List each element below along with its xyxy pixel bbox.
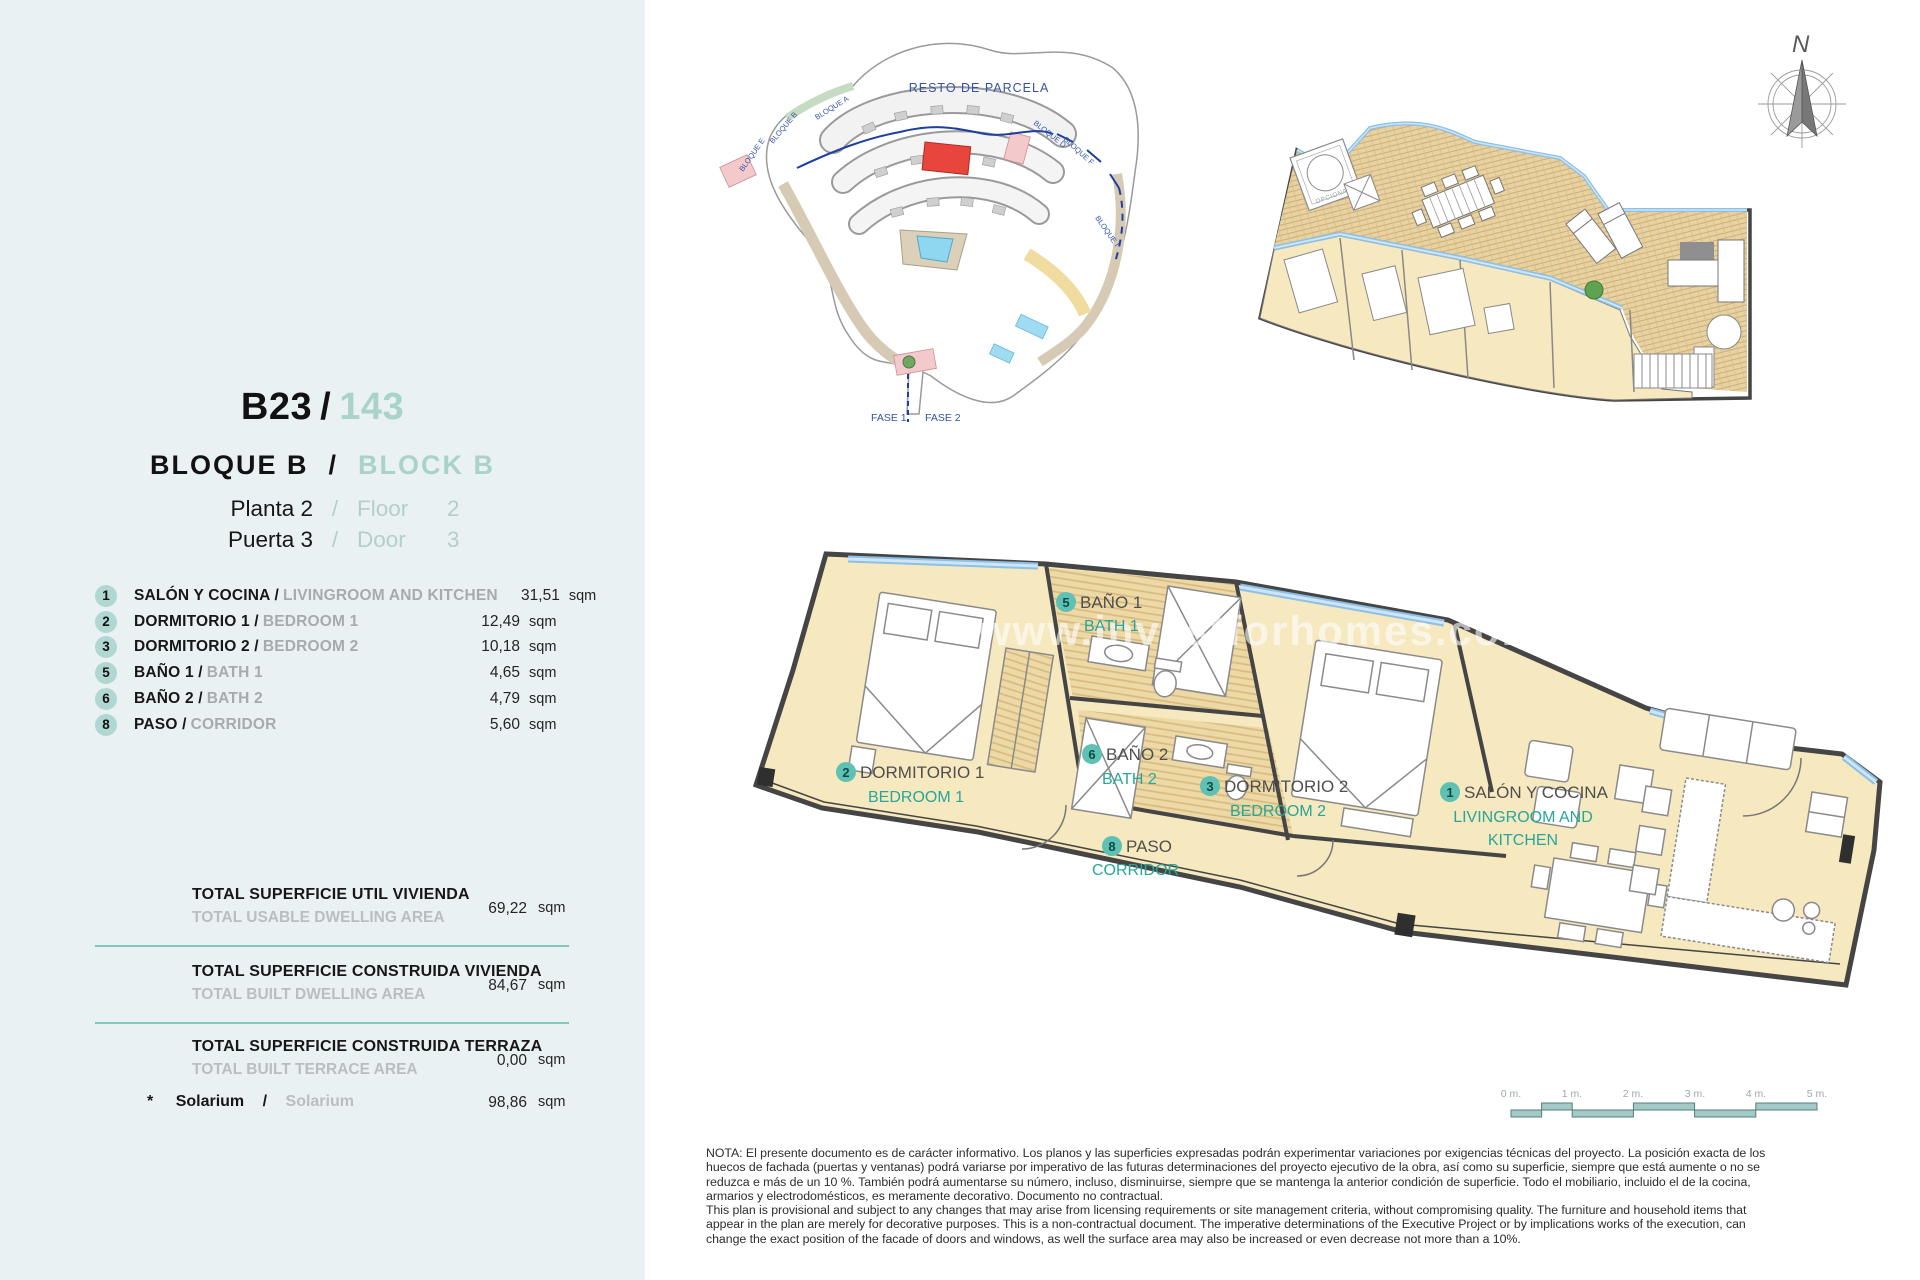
room-area-unit: sqm [529, 665, 569, 681]
room-row-bath1: 5 BAÑO 1 /BATH 1 4,65 sqm [95, 660, 569, 686]
totals-section: TOTAL SUPERFICIE UTIL VIVIENDA TOTAL USA… [95, 878, 569, 1111]
room-row-corridor: 8 PASO /CORRIDOR 5,60 sqm [95, 712, 569, 738]
divider [95, 945, 569, 947]
armchair [1524, 740, 1573, 782]
plan-sheet: B23/143 BLOQUE B/BLOCK B Planta 2 / Floo… [0, 0, 1920, 1280]
scale-0m: 0 m. [1501, 1088, 1521, 1100]
bath2-label-es: BAÑO 2 [1106, 745, 1168, 764]
door-es: Puerta 3 [95, 527, 313, 553]
room-number-badge: 8 [95, 714, 117, 736]
floor-line: Planta 2 / Floor 2 [95, 496, 565, 522]
room-area: 4,65 [458, 664, 520, 682]
room-number-badge: 2 [95, 611, 117, 633]
pool [917, 236, 953, 262]
note-line: change the exact position of the facade … [706, 1232, 1886, 1246]
door-sep: / [313, 527, 357, 553]
resto-de-parcela-label: RESTO DE PARCELA [909, 81, 1050, 95]
bedroom1-label-en: BEDROOM 1 [868, 789, 964, 806]
unit-number: 143 [339, 386, 404, 428]
room-number-badge: 6 [95, 688, 117, 710]
info-panel: B23/143 BLOQUE B/BLOCK B Planta 2 / Floo… [0, 0, 645, 1280]
total-unit: sqm [538, 977, 565, 993]
room-row-bedroom1: 2 DORMITORIO 1 /BEDROOM 1 12,49 sqm [95, 609, 569, 635]
fase1-label: FASE 1 [871, 412, 907, 424]
solarium-es: Solarium [176, 1093, 244, 1110]
site-plan-figure: RESTO DE PARCELA BLOQUE E BLOQUE B BLOQU… [695, 22, 1155, 432]
total-built-area: TOTAL SUPERFICIE CONSTRUIDA VIVIENDA TOT… [95, 963, 569, 1004]
block-sep: / [329, 450, 339, 480]
salon-label-es: SALÓN Y COCINA [1464, 783, 1609, 802]
north-label: N [1792, 31, 1810, 58]
unit-code: B23 [241, 386, 312, 428]
room-area: 4,79 [458, 690, 520, 708]
floor-es: Planta 2 [95, 496, 313, 522]
room-area-unit: sqm [529, 639, 569, 655]
room-area: 10,18 [458, 638, 520, 656]
total-usable-area: TOTAL SUPERFICIE UTIL VIVIENDA TOTAL USA… [95, 878, 569, 927]
bedroom1-label-es: DORMITORIO 1 [860, 763, 984, 782]
block-title: BLOQUE B/BLOCK B [0, 450, 645, 481]
room-number-badge: 3 [95, 636, 117, 658]
fase2-label: FASE 2 [925, 412, 961, 424]
note-line: appear in the plan are merely for decora… [706, 1217, 1886, 1231]
room-area-unit: sqm [529, 717, 569, 733]
plant [1585, 281, 1603, 299]
bath1-label-en: BATH 1 [1084, 618, 1139, 635]
bedroom2-label-en: BEDROOM 2 [1230, 803, 1326, 820]
divider [95, 1022, 569, 1024]
svg-text:1: 1 [1446, 785, 1453, 800]
room-label: DORMITORIO 2 /BEDROOM 2 [134, 638, 458, 656]
legal-note: NOTA: El presente documento es de caráct… [706, 1146, 1886, 1246]
room-label: PASO /CORRIDOR [134, 716, 458, 734]
note-line: NOTA: El presente documento es de caráct… [706, 1146, 1886, 1160]
note-line: armarios y electrodomésticos, es meramen… [706, 1189, 1886, 1203]
room-label: BAÑO 2 /BATH 2 [134, 690, 458, 708]
bath1-label-es: BAÑO 1 [1080, 593, 1142, 612]
svg-text:8: 8 [1108, 839, 1115, 854]
scale-1m: 1 m. [1562, 1088, 1582, 1100]
svg-text:6: 6 [1088, 747, 1095, 762]
floor-sep: / [313, 496, 357, 522]
total-value: 69,22 [443, 900, 527, 918]
solarium-row: * Solarium / Solarium 98,86 sqm [95, 1093, 569, 1111]
scale-bar: 0 m. 1 m. 2 m. 3 m. 4 m. 5 m. [1494, 1086, 1839, 1134]
total-unit: sqm [538, 900, 565, 916]
door-line: Puerta 3 / Door 3 [95, 527, 565, 553]
total-unit: sqm [538, 1052, 565, 1068]
note-line: This plan is provisional and subject to … [706, 1203, 1886, 1217]
floor-en: Floor [357, 496, 435, 522]
room-label: SALÓN Y COCINA /LIVINGROOM AND KITCHEN [134, 587, 498, 605]
room-area: 12,49 [458, 613, 520, 631]
bed-1 [856, 592, 996, 761]
room-area-unit: sqm [529, 614, 569, 630]
scale-2m: 2 m. [1623, 1088, 1643, 1100]
room-number-badge: 1 [95, 585, 117, 607]
solarium-sep: / [263, 1093, 267, 1110]
salon-label-en2: KITCHEN [1488, 832, 1558, 849]
room-row-salon: 1 SALÓN Y COCINA /LIVINGROOM AND KITCHEN… [95, 583, 569, 609]
unit-slash: / [320, 386, 331, 428]
compass-rose: N [1742, 30, 1862, 155]
north-needle-icon [1787, 60, 1802, 136]
door-en: Door [357, 527, 435, 553]
solarium-value: 98,86 [443, 1094, 527, 1112]
total-value: 0,00 [443, 1052, 527, 1070]
scale-4m: 4 m. [1746, 1088, 1766, 1100]
bath2-label-en: BATH 2 [1102, 771, 1157, 788]
room-number-badge: 5 [95, 662, 117, 684]
north-needle-icon [1802, 60, 1817, 136]
corridor-label-es: PASO [1126, 837, 1172, 856]
door-number: 3 [447, 527, 487, 553]
floor-number: 2 [447, 496, 487, 522]
unit-title: B23/143 [0, 386, 645, 429]
room-area: 5,60 [458, 716, 520, 734]
scale-bar-steps [1511, 1103, 1817, 1117]
solarium-en: Solarium [286, 1093, 354, 1110]
watermark: www.investforhomes.com [977, 607, 1541, 654]
highlighted-unit [922, 142, 971, 175]
bedroom2-label-es: DORMITORIO 2 [1224, 777, 1348, 796]
room-label: BAÑO 1 /BATH 1 [134, 664, 458, 682]
svg-text:5: 5 [1062, 595, 1069, 610]
roof-plan-figure: OPCIONAL [1232, 92, 1792, 427]
room-area: 31,51 [498, 587, 560, 605]
block-en: BLOCK B [358, 450, 495, 480]
main-floor-plan-figure: www.investforhomes.com 5 BAÑO 1 BATH 1 2… [748, 540, 1893, 1045]
svg-text:2: 2 [842, 765, 849, 780]
solarium-unit: sqm [538, 1094, 565, 1110]
tree [903, 356, 915, 368]
svg-text:3: 3 [1206, 779, 1213, 794]
room-area-unit: sqm [529, 691, 569, 707]
total-terrace-area: TOTAL SUPERFICIE CONSTRUIDA TERRAZA TOTA… [95, 1038, 569, 1079]
solarium-star: * [147, 1093, 153, 1110]
room-area-unit: sqm [569, 588, 609, 604]
room-label: DORMITORIO 1 /BEDROOM 1 [134, 613, 458, 631]
fridge [1806, 792, 1848, 837]
room-row-bath2: 6 BAÑO 2 /BATH 2 4,79 sqm [95, 686, 569, 712]
scale-3m: 3 m. [1685, 1088, 1705, 1100]
total-value: 84,67 [443, 977, 527, 995]
block-es: BLOQUE B [150, 450, 309, 480]
room-row-bedroom2: 3 DORMITORIO 2 /BEDROOM 2 10,18 sqm [95, 635, 569, 661]
corridor-label-en: CORRIDOR [1092, 862, 1179, 879]
note-line: reduzca e más de un 10 %. También podrá … [706, 1175, 1886, 1189]
note-line: huecos de fachada (puertas y ventanas) p… [706, 1160, 1886, 1174]
scale-5m: 5 m. [1807, 1088, 1827, 1100]
room-list: 1 SALÓN Y COCINA /LIVINGROOM AND KITCHEN… [95, 583, 569, 738]
salon-label-en1: LIVINGROOM AND [1453, 809, 1593, 826]
